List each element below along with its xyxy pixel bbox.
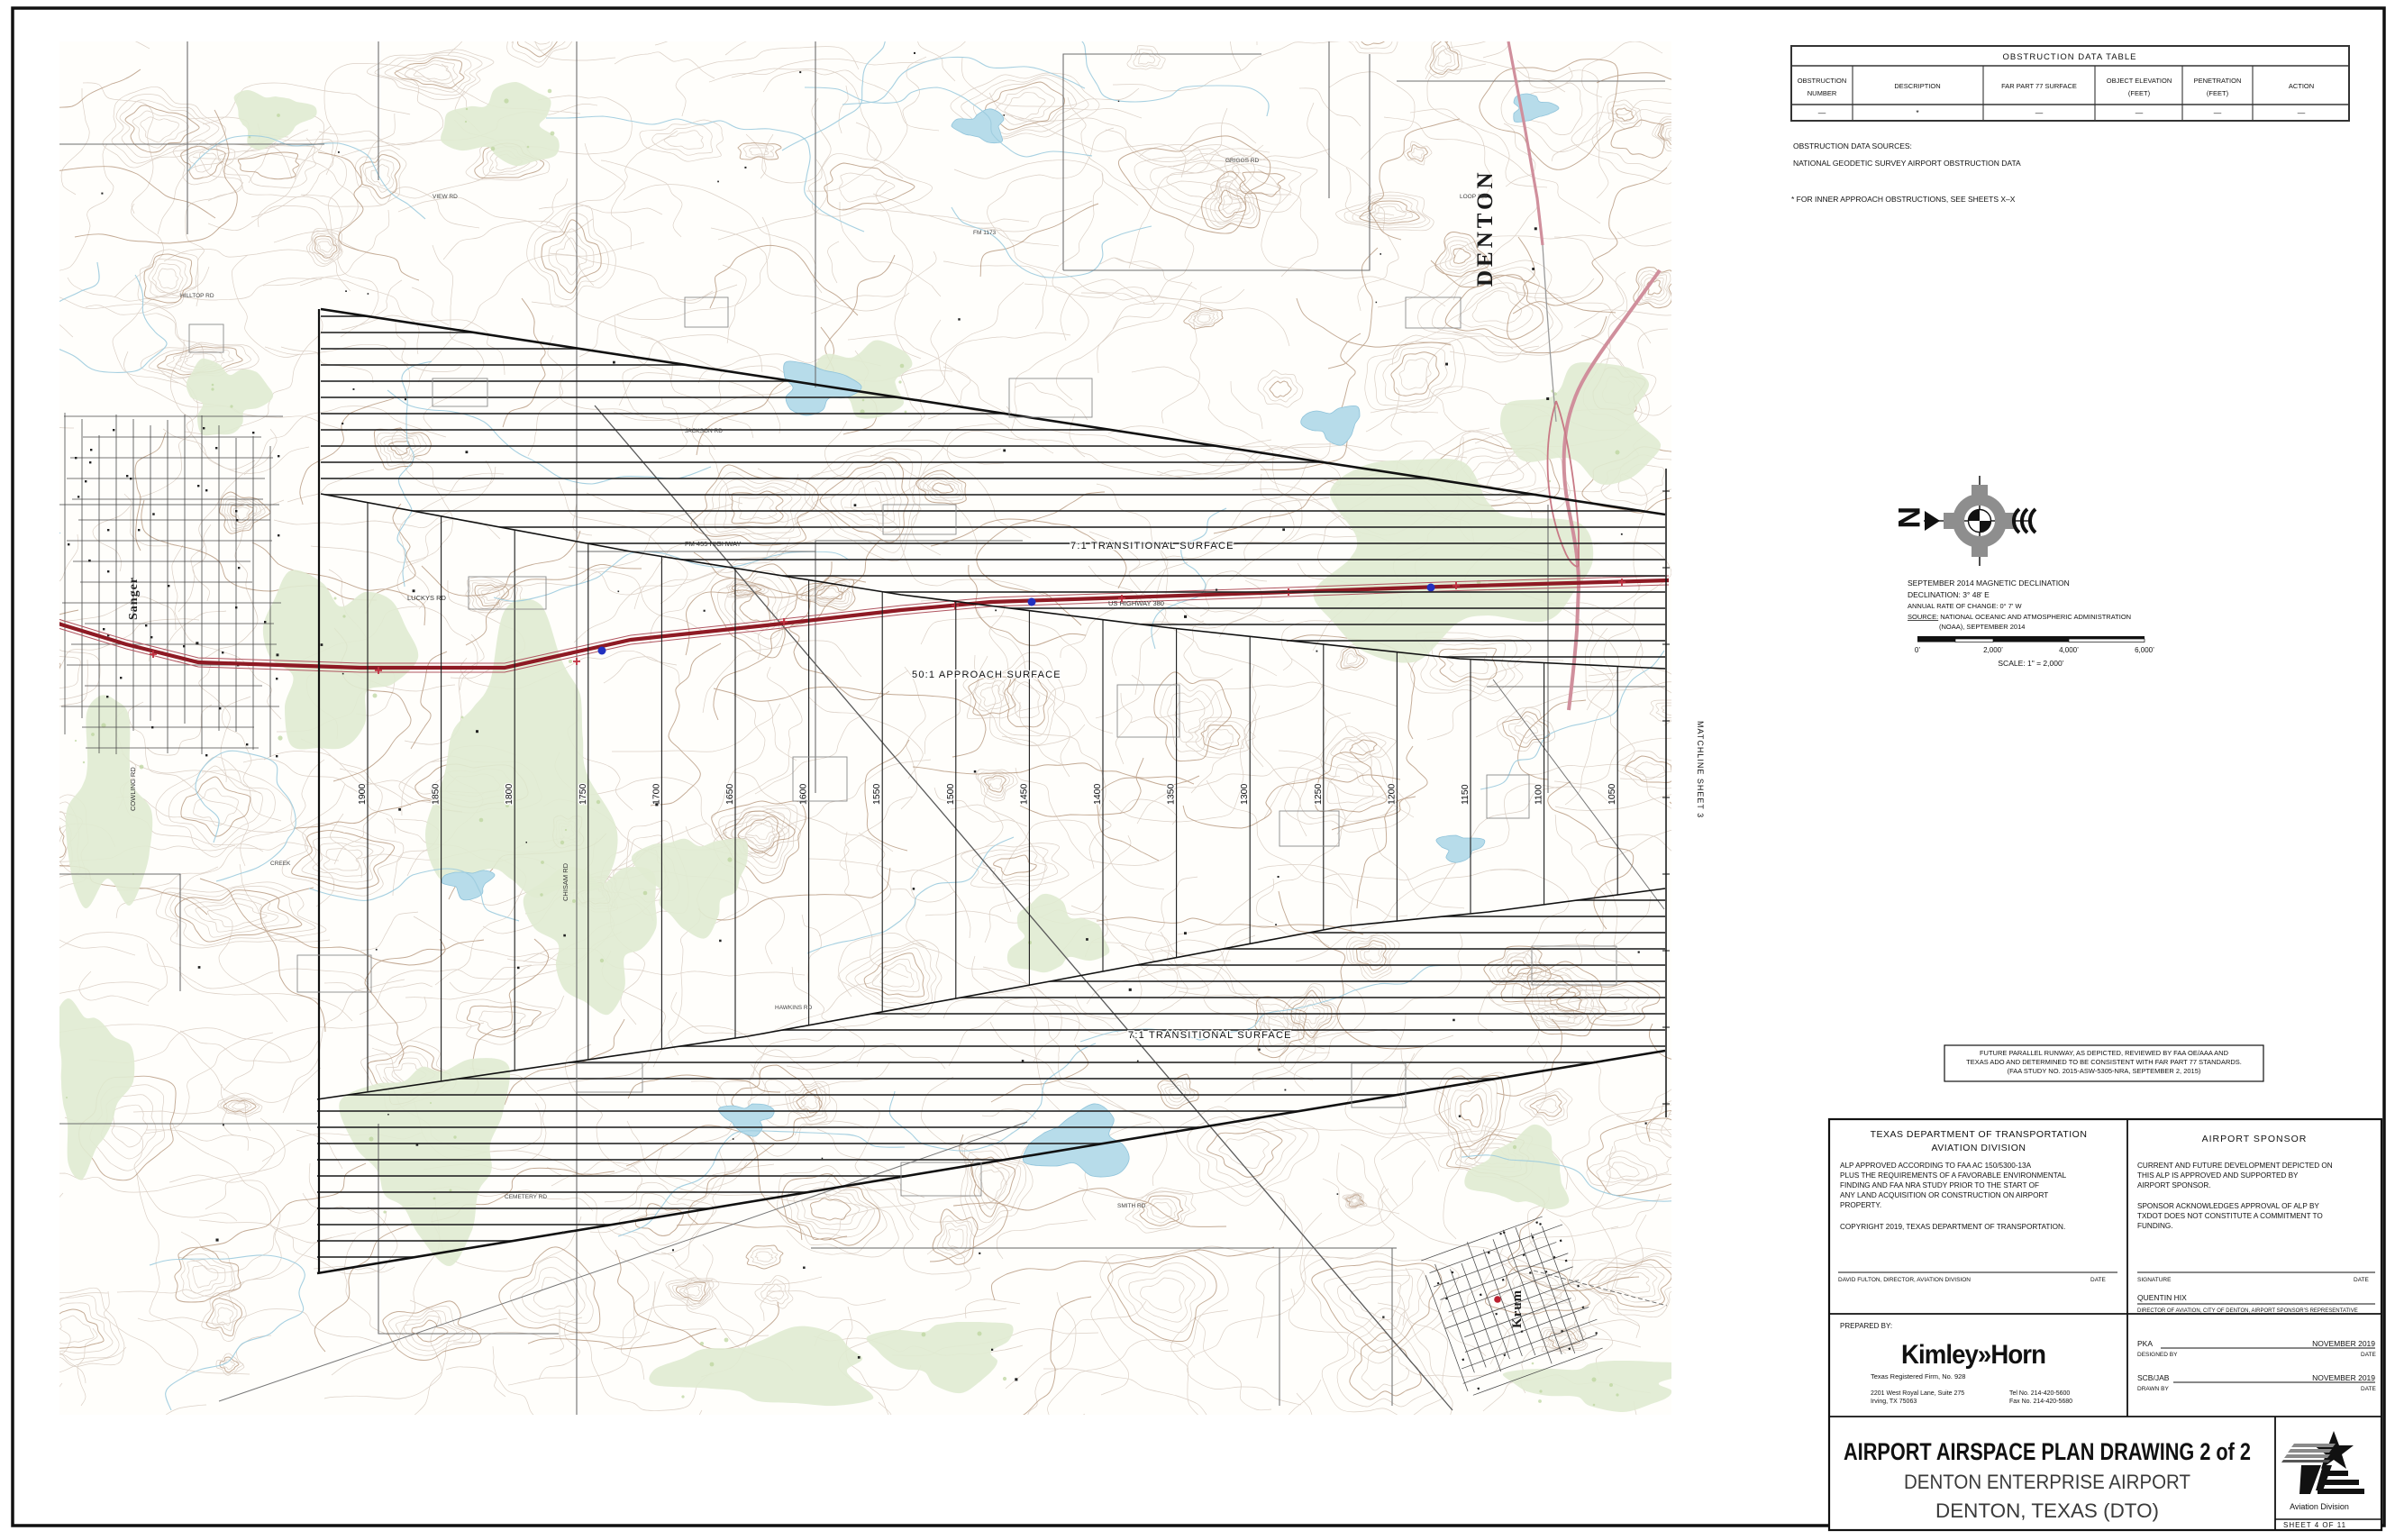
svg-text:2,000’: 2,000’: [1983, 646, 2003, 654]
svg-text:OBSTRUCTION DATA SOURCES:: OBSTRUCTION DATA SOURCES:: [1793, 141, 1912, 150]
svg-text:PKA: PKA: [2137, 1339, 2153, 1348]
svg-text:(FEET): (FEET): [2128, 89, 2151, 97]
svg-text:NOVEMBER 2019: NOVEMBER 2019: [2312, 1339, 2375, 1348]
svg-text:Sanger: Sanger: [127, 577, 141, 620]
svg-text:Irving, TX 75063: Irving, TX 75063: [1871, 1399, 1917, 1405]
svg-text:SCB/JAB: SCB/JAB: [2137, 1373, 2170, 1382]
svg-text:AIRPORT SPONSOR.: AIRPORT SPONSOR.: [2137, 1181, 2211, 1189]
svg-text:ALP APPROVED ACCORDING TO: ALP APPROVED ACCORDING TO FAA AC 150/530…: [1840, 1162, 2032, 1170]
svg-text:COWLING RD: COWLING RD: [129, 767, 137, 811]
svg-text:DENTON ENTERPRISE AIRPORT: DENTON ENTERPRISE AIRPORT: [1904, 1471, 2190, 1493]
svg-text:PLUS THE REQUIREMENTS OF A: PLUS THE REQUIREMENTS OF A FAVORABLE ENV…: [1840, 1171, 2067, 1180]
svg-text:PROPERTY.: PROPERTY.: [1840, 1201, 1881, 1209]
svg-text:SEPTEMBER 2014 MAGNETIC DECLIN: SEPTEMBER 2014 MAGNETIC DECLINATION: [1908, 579, 2070, 588]
svg-text:(FAA STUDY NO. 2015-ASW-5305-N: (FAA STUDY NO. 2015-ASW-5305-NRA, SEPTEM…: [2008, 1067, 2201, 1075]
svg-text:1350: 1350: [1166, 783, 1177, 805]
svg-text:SOURCE: NATIONAL OCEANIC AND: SOURCE: NATIONAL OCEANIC AND ATMOSPHERIC…: [1908, 613, 2131, 621]
svg-text:7:1 TRANSITIONAL SURFACE: 7:1 TRANSITIONAL SURFACE: [1070, 541, 1234, 551]
svg-text:US HIGHWAY 380: US HIGHWAY 380: [1108, 599, 1164, 607]
svg-text:AIRPORT AIRSPACE PLAN DRAWI: AIRPORT AIRSPACE PLAN DRAWING 2 of 2: [1844, 1438, 2251, 1465]
svg-text:MATCHLINE SHEET 3: MATCHLINE SHEET 3: [1696, 721, 1705, 818]
svg-text:VIEW RD: VIEW RD: [433, 194, 458, 200]
svg-text:7:1 TRANSITIONAL SURFACE: 7:1 TRANSITIONAL SURFACE: [1128, 1030, 1292, 1041]
svg-text:OBJECT ELEVATION: OBJECT ELEVATION: [2107, 77, 2172, 85]
svg-text:FM 1173: FM 1173: [973, 230, 997, 236]
svg-text:DATE: DATE: [2361, 1352, 2377, 1358]
svg-text:FUNDING.: FUNDING.: [2137, 1222, 2173, 1230]
svg-text:1450: 1450: [1018, 783, 1029, 805]
svg-text:TEXAS ADO AND DETERMINED TO BE: TEXAS ADO AND DETERMINED TO BE CONSISTEN…: [1966, 1058, 2242, 1066]
svg-text:6,000’: 6,000’: [2135, 646, 2154, 654]
svg-text:HAWKINS RD: HAWKINS RD: [775, 1005, 813, 1011]
svg-text:DRAWN BY: DRAWN BY: [2137, 1386, 2169, 1392]
svg-text:CHISAM RD: CHISAM RD: [561, 862, 569, 901]
svg-text:NUMBER: NUMBER: [1808, 89, 1837, 97]
svg-text:TXDOT DOES NOT CONSTITUTE: TXDOT DOES NOT CONSTITUTE A COMMITMENT T…: [2137, 1212, 2323, 1220]
svg-text:Kimley»Horn: Kimley»Horn: [1901, 1340, 2045, 1370]
svg-text:N: N: [1891, 506, 1926, 529]
svg-text:DIRECTOR OF AVIATION, CITY OF: DIRECTOR OF AVIATION, CITY OF DENTON, AI…: [2137, 1308, 2358, 1314]
svg-text:DATE: DATE: [2361, 1386, 2377, 1392]
svg-text:1400: 1400: [1092, 783, 1103, 805]
svg-text:Fax No. 214-420-5680: Fax No. 214-420-5680: [2009, 1399, 2072, 1405]
svg-text:DATE: DATE: [2354, 1277, 2370, 1283]
svg-text:1550: 1550: [871, 783, 882, 805]
svg-text:(FEET): (FEET): [2207, 89, 2229, 97]
svg-text:DATE: DATE: [2090, 1277, 2107, 1283]
svg-text:FUTURE PARALLEL RUNWAY, AS DEP: FUTURE PARALLEL RUNWAY, AS DEPICTED, REV…: [1980, 1049, 2229, 1057]
svg-text:CURRENT AND FUTURE DEVELOPM: CURRENT AND FUTURE DEVELOPMENT DEPICTED …: [2137, 1162, 2333, 1170]
svg-text:LUCKYS RD: LUCKYS RD: [407, 594, 447, 602]
svg-text:Texas Registered Firm, No. 928: Texas Registered Firm, No. 928: [1871, 1372, 1965, 1381]
svg-text:AIRPORT SPONSOR: AIRPORT SPONSOR: [2202, 1134, 2308, 1144]
svg-text:* FOR INNER APPROACH OBSTRUCT: * FOR INNER APPROACH OBSTRUCTIONS, SEE S…: [1791, 195, 2016, 204]
svg-text:THIS ALP IS APPROVED AND: THIS ALP IS APPROVED AND SUPPORTED BY: [2137, 1171, 2299, 1180]
svg-text:QUENTIN HIX: QUENTIN HIX: [2137, 1293, 2187, 1302]
svg-text:1800: 1800: [504, 783, 515, 805]
svg-text:Krum: Krum: [1510, 1289, 1525, 1328]
svg-text:—: —: [2135, 108, 2144, 117]
svg-text:1050: 1050: [1607, 783, 1617, 805]
svg-text:FINDING AND FAA NRA STUDY: FINDING AND FAA NRA STUDY PRIOR TO THE S…: [1840, 1181, 2039, 1189]
svg-text:1750: 1750: [578, 783, 588, 805]
svg-text:DAVID FULTON, DIRECTOR, AVIATI: DAVID FULTON, DIRECTOR, AVIATION DIVISIO…: [1838, 1277, 1971, 1283]
svg-text:1700: 1700: [651, 783, 661, 805]
svg-text:2201 West Royal Lane, Suite 27: 2201 West Royal Lane, Suite 275: [1871, 1390, 1964, 1397]
svg-text:NATIONAL GEODETIC SURVEY AIRPO: NATIONAL GEODETIC SURVEY AIRPORT OBSTRUC…: [1793, 159, 2021, 168]
svg-text:NOVEMBER 2019: NOVEMBER 2019: [2312, 1373, 2375, 1382]
svg-text:1500: 1500: [945, 783, 956, 805]
svg-text:1850: 1850: [431, 783, 442, 805]
svg-text:PENETRATION: PENETRATION: [2194, 77, 2242, 85]
svg-text:LOOP 288: LOOP 288: [1460, 194, 1488, 200]
svg-text:Tel No. 214-420-5600: Tel No. 214-420-5600: [2009, 1390, 2070, 1397]
svg-text:1150: 1150: [1460, 784, 1471, 805]
svg-text:(NOAA), SEPTEMBER 2014: (NOAA), SEPTEMBER 2014: [1939, 623, 2025, 631]
svg-text:SHEET 4 OF 11: SHEET 4 OF 11: [2283, 1521, 2346, 1529]
svg-text:HILLTOP RD: HILLTOP RD: [180, 293, 214, 299]
svg-text:FAR PART 77 SURFACE: FAR PART 77 SURFACE: [2001, 82, 2077, 90]
svg-text:DENTON, TEXAS (DTO): DENTON, TEXAS (DTO): [1935, 1499, 2159, 1522]
svg-text:ANY LAND ACQUISITION OR CO: ANY LAND ACQUISITION OR CONSTRUCTION ON …: [1840, 1191, 2048, 1199]
svg-text:1250: 1250: [1313, 783, 1324, 805]
svg-text:DESCRIPTION: DESCRIPTION: [1894, 82, 1940, 90]
svg-text:—: —: [1818, 108, 1826, 117]
svg-text:PREPARED BY:: PREPARED BY:: [1840, 1322, 1892, 1330]
svg-text:DECLINATION: 3° 48' E: DECLINATION: 3° 48' E: [1908, 590, 1990, 599]
svg-text:Aviation Division: Aviation Division: [2290, 1502, 2349, 1511]
svg-text:—: —: [2214, 108, 2222, 117]
svg-text:COPYRIGHT 2019, TEXAS DEPAR: COPYRIGHT 2019, TEXAS DEPARTMENT OF TRAN…: [1840, 1223, 2065, 1231]
svg-text:1100: 1100: [1534, 784, 1544, 805]
svg-text:1200: 1200: [1386, 783, 1397, 805]
svg-text:OBSTRUCTION DATA TABLE: OBSTRUCTION DATA TABLE: [2002, 52, 2136, 62]
svg-text:1300: 1300: [1239, 783, 1250, 805]
svg-text:SPONSOR ACKNOWLEDGES APPROVA: SPONSOR ACKNOWLEDGES APPROVAL OF ALP BY: [2137, 1202, 2319, 1210]
svg-text:—: —: [2035, 108, 2044, 117]
svg-text:DESIGNED BY: DESIGNED BY: [2137, 1352, 2178, 1358]
svg-text:ANNUAL RATE OF CHANGE: 0° 7' W: ANNUAL RATE OF CHANGE: 0° 7' W: [1908, 602, 2022, 610]
svg-text:FM 455 HIGHWAY: FM 455 HIGHWAY: [685, 540, 742, 548]
svg-text:1650: 1650: [724, 783, 735, 805]
svg-text:0’: 0’: [1915, 646, 1920, 654]
svg-text:SIGNATURE: SIGNATURE: [2137, 1277, 2172, 1283]
svg-text:ACTION: ACTION: [2289, 82, 2314, 90]
svg-text:SMITH RD: SMITH RD: [1117, 1203, 1146, 1209]
svg-text:4,000’: 4,000’: [2059, 646, 2079, 654]
svg-text:GRIGGS RD: GRIGGS RD: [1225, 158, 1260, 164]
svg-text:JACKSON RD: JACKSON RD: [685, 428, 723, 434]
svg-text:DENTON: DENTON: [1473, 169, 1498, 287]
svg-text:—: —: [2298, 108, 2306, 117]
svg-text:1900: 1900: [357, 783, 368, 805]
svg-text:1600: 1600: [798, 783, 809, 805]
svg-text:CEMETERY RD: CEMETERY RD: [505, 1194, 547, 1200]
svg-text:TEXAS DEPARTMENT OF TRANSPO: TEXAS DEPARTMENT OF TRANSPORTATION: [1871, 1129, 2088, 1140]
svg-text:50:1 APPROACH SURFACE: 50:1 APPROACH SURFACE: [912, 670, 1061, 680]
svg-text:SCALE: 1" = 2,000’: SCALE: 1" = 2,000’: [1998, 659, 2063, 668]
svg-text:AVIATION DIVISION: AVIATION DIVISION: [1932, 1143, 2026, 1153]
svg-text:CREEK: CREEK: [270, 861, 291, 867]
svg-text:OBSTRUCTION: OBSTRUCTION: [1798, 77, 1847, 85]
